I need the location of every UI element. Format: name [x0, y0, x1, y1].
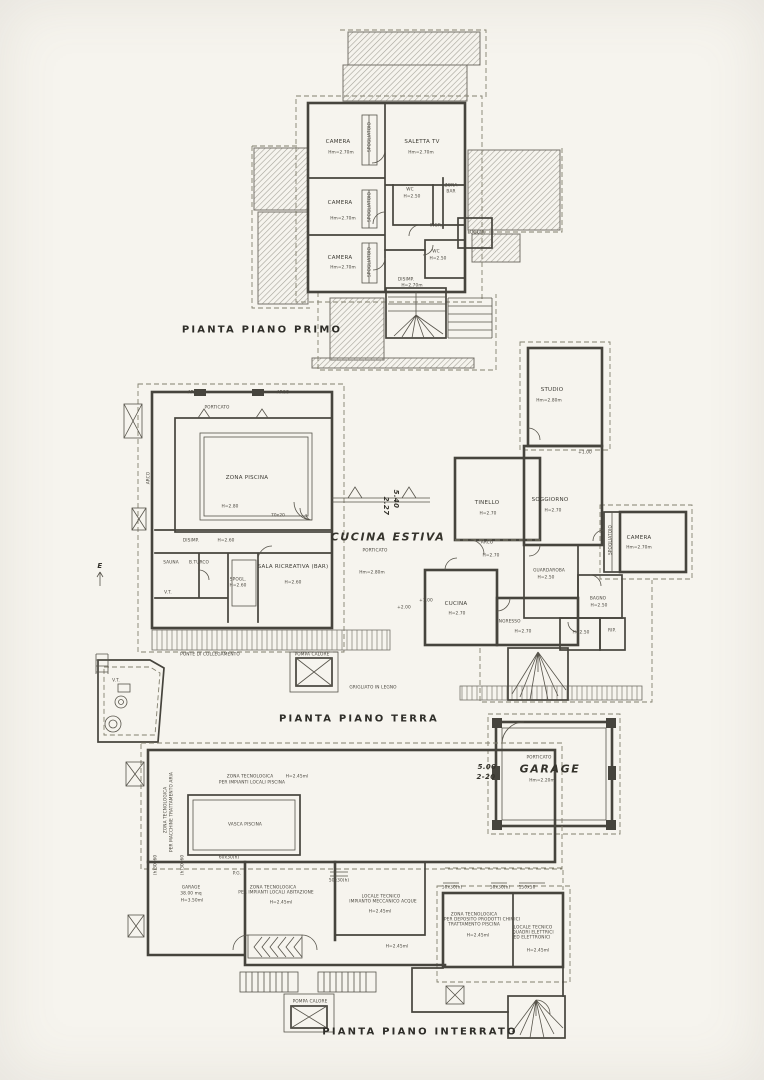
terra-room-soggiorno-height: H=2.70 [545, 509, 562, 514]
terra-room-soggiorno: SOGGIORNO [532, 497, 569, 503]
drawing-sheet: CAMERAHm=2.70mSALETTA TVHm=2.70mSPOGLIAT… [0, 0, 764, 1080]
interrato-room-zt-piscina-2: PER IMPIANTI LOCALI PISCINA [219, 781, 285, 786]
primo-room-ingr: INGR. [430, 224, 443, 229]
terra-level-plus-200: +2.00 [397, 606, 411, 611]
terra-level-plus-100-b: +1.00 [578, 451, 592, 456]
terra-room-bagno-turco: B.TURCO [189, 561, 209, 566]
primo-room-camera-3: CAMERA [328, 255, 353, 261]
primo-room-zona-bar-2: BAR [446, 190, 455, 195]
interrato-dim-50x30-b: 50x30(h) [442, 886, 462, 891]
terra-room-wc-terra-height: H=2.50 [573, 631, 590, 636]
primo-room-spogliatoio-1: SPOGLIATOIO [368, 122, 373, 152]
primo-room-wc-1-height: H=2.50 [404, 195, 421, 200]
terra-note-porticato-cucina: PORTICATO [362, 549, 387, 554]
interrato-corridor-height: H=2.45ml [386, 945, 409, 950]
interrato-room-zt-piscina-height: H=2.45ml [286, 775, 309, 780]
interrato-room-garage-interrato: GARAGE [182, 886, 201, 891]
terra-hand-dim-540: 5.40 [392, 490, 400, 509]
interrato-dim-50x30-a: 50x30(h) [329, 879, 349, 884]
terra-room-cucina: CUCINA [445, 601, 468, 607]
interrato-dim-pg: P.G. [233, 872, 241, 877]
terra-level-plus-100: +1.00 [419, 599, 433, 604]
interrato-room-locale-acque-2: IMPIANTO MECCANICO ACQUE [349, 900, 416, 905]
terra-room-guardaroba-height: H=2.50 [538, 576, 555, 581]
interrato-dim-60x30: 60x30(h) [219, 856, 239, 861]
terra-note-porticato-piscina: PORTICATO [204, 406, 229, 411]
interrato-room-zt-abitazione-2: PER IMPIANTI LOCALI ABITAZIONE [238, 891, 313, 896]
terra-note-grigliato: GRIGLIATO IN LEGNO [349, 686, 396, 691]
interrato-room-locale-elettrico-3: ED ELETTRONICI [514, 936, 551, 941]
terra-room-tinello: TINELLO [475, 500, 500, 506]
terra-note-ponte: PONTE DI COLLEGAMENTO [180, 653, 240, 658]
terra-room-sala-ricreativa: SALA RICREATIVA (BAR) [258, 564, 329, 570]
terra-note-garage-height: Hm=2.20m [529, 779, 555, 784]
terra-hand-dim-220: 2-20 [476, 773, 495, 781]
primo-room-camera-3-height: Hm=2.70m [330, 266, 356, 271]
terra-hand-garage: GARAGE [520, 763, 581, 776]
terra-room-studio-height: Hm=2.80m [536, 399, 562, 404]
terra-note-arco-left: ARCO [147, 472, 152, 485]
terra-note-vt-locale: V.T. [164, 591, 172, 596]
primo-room-camera-1-height: Hm=2.70m [328, 151, 354, 156]
terra-hand-east-mark: E [97, 562, 102, 570]
terra-note-porticato-cucina-height: Hm=2.80m [359, 571, 385, 576]
interrato-room-zt-chimici-3: TRATTAMENTO PISCINA [448, 923, 500, 928]
interrato-room-zt-abitazione-height: H=2.45ml [270, 901, 293, 906]
interrato-room-zt-aria-2: PER MACCHINE TRATTAMENTO ARIA [170, 772, 175, 852]
terra-note-pompa-calore: POMPA CALORE [295, 653, 330, 658]
primo-room-wc-2-height: H=2.50 [430, 257, 447, 262]
terra-room-camera-terra-height: Hm=2.70m [626, 546, 652, 551]
plan-title-interrato: PIANTA PIANO INTERRATO [322, 1027, 517, 1038]
plan-title-terra: PIANTA PIANO TERRA [279, 714, 439, 725]
terra-room-sala-ricreativa-height: H=2.60 [285, 581, 302, 586]
interrato-room-locale-elettrico-height: H=2.45ml [527, 949, 550, 954]
terra-room-spogl-height: H=2.60 [230, 584, 247, 589]
terra-room-studio: STUDIO [541, 387, 564, 393]
primo-room-zona-bar-1: ZONA [445, 184, 458, 189]
primo-room-wc-2: WC [432, 250, 439, 255]
primo-room-saletta-tv-height: Hm=2.70m [408, 151, 434, 156]
terra-room-camera-terra: CAMERA [627, 535, 652, 541]
terra-room-sauna: SAUNA [163, 561, 179, 566]
terra-room-disimp-terra-height: H=2.60 [218, 539, 235, 544]
primo-room-spogliatoio-2: SPOGLIATOIO [368, 192, 373, 222]
terra-room-zona-piscina-height: H=2.80 [222, 505, 239, 510]
primo-room-camera-1: CAMERA [326, 139, 351, 145]
terra-room-cucina-height: H=2.70 [449, 612, 466, 617]
terra-room-bagno-height: H=2.50 [591, 604, 608, 609]
terra-note-arco-1: ARCO [188, 391, 201, 396]
primo-room-loggia: LOGGIA [467, 231, 484, 236]
interrato-room-zt-chimici-height: H=2.45ml [467, 934, 490, 939]
terra-room-tinello-height: H=2.70 [480, 512, 497, 517]
terra-hand-dim-227: 2.27 [382, 497, 390, 516]
terra-hand-cucina-estiva: CUCINA ESTIVA [331, 531, 446, 544]
terra-room-spogl: SPOGL. [230, 578, 246, 583]
interrato-room-garage-interrato-height: H=3.50ml [181, 899, 204, 904]
interrato-note-pompa-calore-interrato: POMPA CALORE [293, 1000, 328, 1005]
interrato-room-locale-acque-height: H=2.45ml [369, 910, 392, 915]
primo-room-camera-2: CAMERA [328, 200, 353, 206]
interrato-room-zt-piscina-1: ZONA TECNOLOGICA [227, 775, 274, 780]
interrato-room-zt-aria-1: ZONA TECNOLOGICA [164, 787, 169, 834]
terra-note-arco-tinello: ARCO [481, 541, 494, 546]
interrato-dim-30x60-2: (h)30x60 [181, 855, 186, 875]
primo-room-wc-1: WC [406, 188, 413, 193]
labels-layer: CAMERAHm=2.70mSALETTA TVHm=2.70mSPOGLIAT… [0, 0, 764, 1080]
interrato-room-garage-interrato-mq: 38.00 mq [180, 892, 201, 897]
terra-room-bagno: BAGNO [590, 597, 606, 602]
plan-title-primo: PIANTA PIANO PRIMO [182, 325, 342, 336]
interrato-room-vasca-piscina: VASCA PISCINA [228, 823, 262, 828]
terra-note-porticato-garage: PORTICATO [526, 756, 551, 761]
primo-room-camera-2-height: Hm=2.70m [330, 217, 356, 222]
interrato-dim-50x30-c: 50x30(h) [490, 886, 510, 891]
terra-dim-pool-step: 70x20 [271, 514, 285, 519]
terra-room-zona-piscina: ZONA PISCINA [226, 475, 269, 481]
terra-room-disimp-terra: DISIMP. [183, 539, 199, 544]
primo-room-disimp: DISIMP. [398, 278, 414, 283]
interrato-dim-150x50: 150x50 [519, 886, 536, 891]
terra-note-arco-tinello-height: H=2.70 [483, 554, 500, 559]
primo-room-spogliatoio-3: SPOGLIATOIO [368, 247, 373, 277]
terra-room-rip: RIP. [608, 629, 616, 634]
terra-note-arco-2: ARCO [277, 391, 290, 396]
terra-room-ingresso-height: H=2.70 [515, 630, 532, 635]
terra-hand-dim-500: 5.00 [478, 763, 497, 771]
terra-note-vt-outbuilding: V.T. [112, 679, 120, 684]
primo-room-disimp-height: H=2.70m [401, 284, 422, 289]
primo-room-saletta-tv: SALETTA TV [404, 139, 439, 145]
terra-room-ingresso: INGRESSO [497, 620, 520, 625]
terra-room-spogliatoio-terra: SPOGLIATOIO [609, 525, 614, 555]
terra-room-guardaroba: GUARDAROBA [533, 569, 565, 574]
interrato-dim-30x60-1: (h)30x60 [154, 855, 159, 875]
